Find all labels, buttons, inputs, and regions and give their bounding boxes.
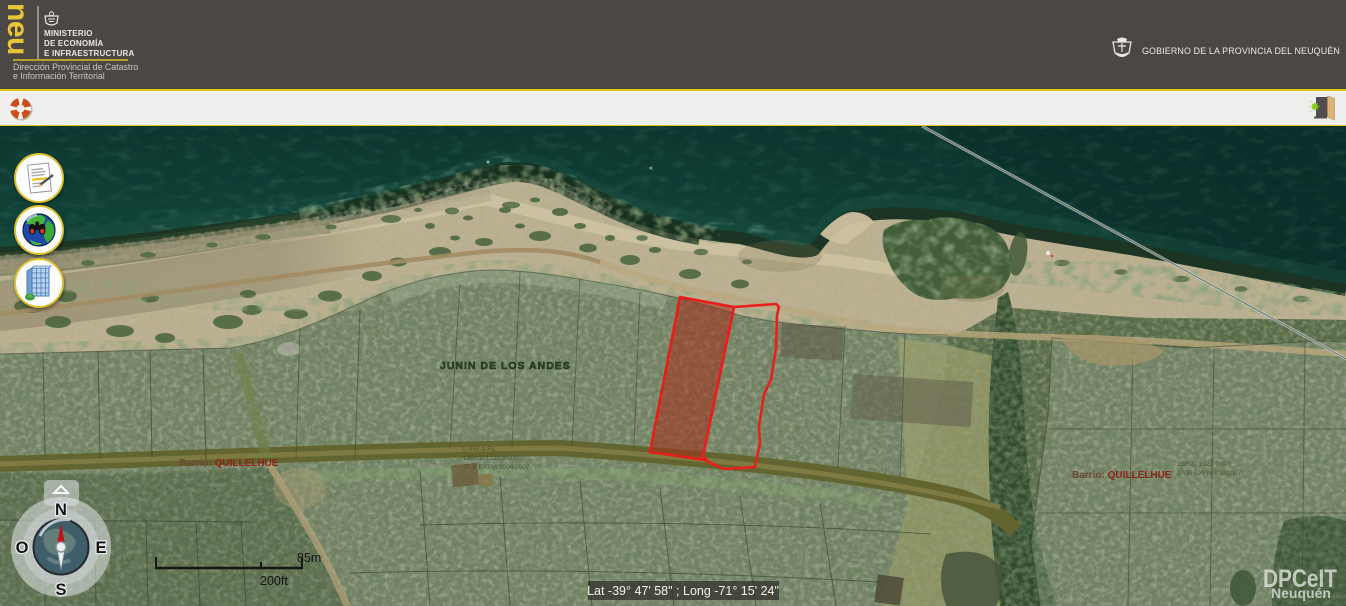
svg-text:1BR20 1922 7/000: 1BR20 1922 7/000 xyxy=(1177,461,1232,468)
svg-text:L-951-1 Fa: L-951-1 Fa xyxy=(463,446,495,453)
svg-text:O: O xyxy=(16,539,29,557)
svg-text:N: N xyxy=(55,501,67,519)
svg-text:Barrio: QUILLELHUE: Barrio: QUILLELHUE xyxy=(1072,470,1172,481)
svg-text:E: E xyxy=(95,539,106,557)
svg-text:JUNIN DE LOS ANDES: JUNIN DE LOS ANDES xyxy=(440,360,571,372)
svg-text:13R9101322200000: 13R9101322200000 xyxy=(463,455,522,462)
svg-text:370B EXPM 938/2007: 370B EXPM 938/2007 xyxy=(1177,470,1242,477)
svg-text:77-B EXPM 3004/2007: 77-B EXPM 3004/2007 xyxy=(463,464,530,471)
svg-text:S: S xyxy=(55,581,66,599)
svg-text:Barrio: QUILLELHUE: Barrio: QUILLELHUE xyxy=(179,458,279,469)
svg-text:85m: 85m xyxy=(297,551,321,565)
svg-text:Lat -39° 47' 58" ; Long -71° 1: Lat -39° 47' 58" ; Long -71° 15' 24" xyxy=(587,584,779,598)
svg-text:200ft: 200ft xyxy=(260,574,288,588)
svg-text:Neuquén: Neuquén xyxy=(1271,586,1331,601)
